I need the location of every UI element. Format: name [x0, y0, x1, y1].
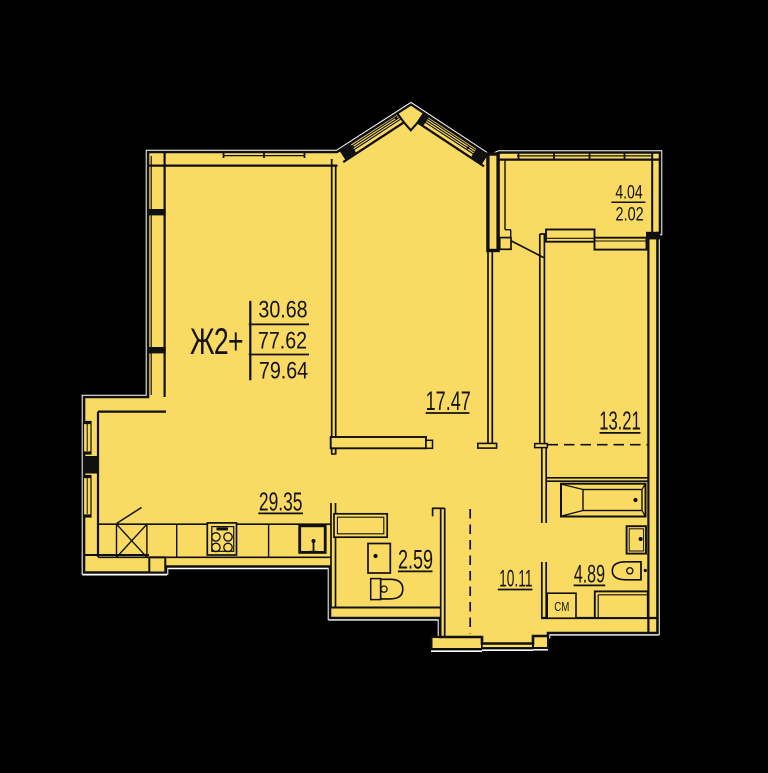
svg-text:2.02: 2.02	[616, 204, 644, 225]
svg-text:2.59: 2.59	[398, 544, 433, 574]
svg-text:17.47: 17.47	[426, 386, 471, 416]
svg-text:4.89: 4.89	[574, 561, 605, 588]
svg-text:СМ: СМ	[554, 601, 569, 614]
svg-text:13.21: 13.21	[599, 406, 641, 436]
svg-text:30.68: 30.68	[258, 295, 307, 322]
svg-text:79.64: 79.64	[259, 356, 308, 383]
svg-text:77.62: 77.62	[258, 326, 307, 353]
svg-text:Ж2+: Ж2+	[190, 321, 243, 362]
svg-text:4.04: 4.04	[615, 182, 642, 204]
svg-text:29.35: 29.35	[259, 487, 303, 516]
